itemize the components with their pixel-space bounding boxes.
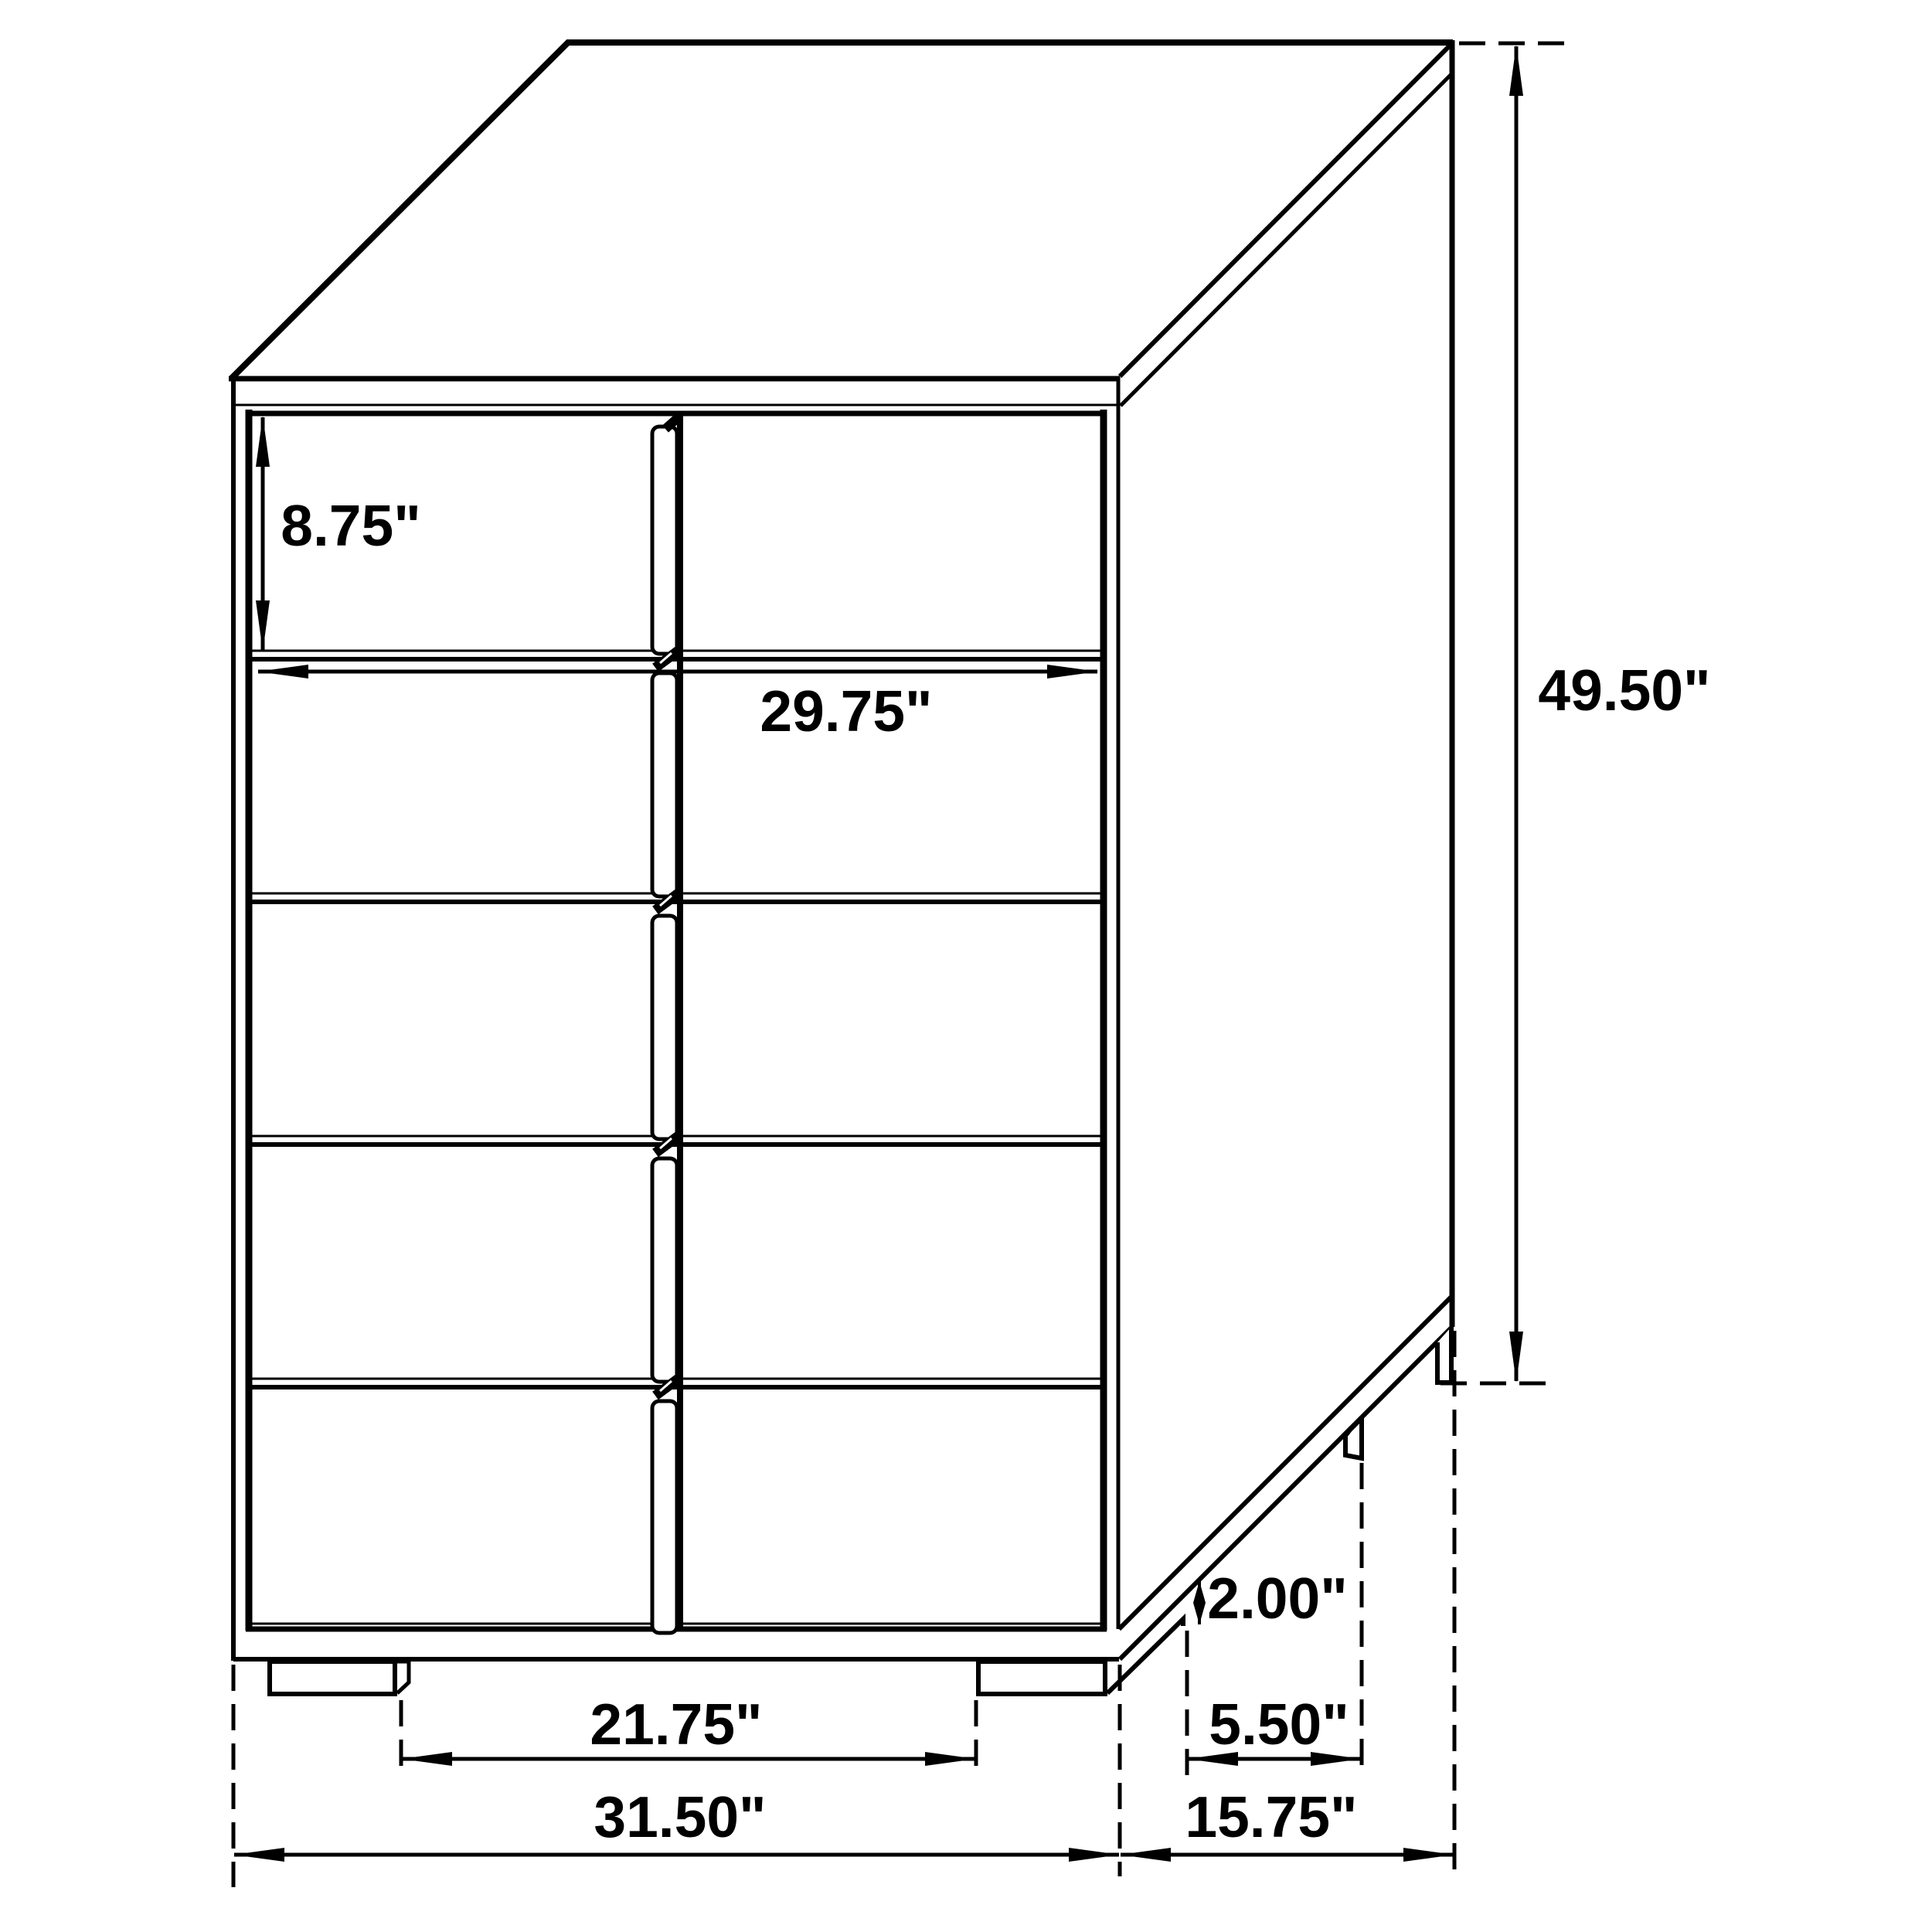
svg-text:15.75": 15.75" [1185,1784,1357,1849]
svg-text:8.75": 8.75" [281,493,421,558]
svg-text:31.50": 31.50" [594,1784,766,1849]
svg-text:29.75": 29.75" [760,679,932,743]
svg-text:2.00": 2.00" [1207,1566,1348,1631]
svg-text:5.50": 5.50" [1209,1692,1349,1757]
svg-text:21.75": 21.75" [590,1692,762,1757]
svg-text:49.50": 49.50" [1538,658,1710,723]
